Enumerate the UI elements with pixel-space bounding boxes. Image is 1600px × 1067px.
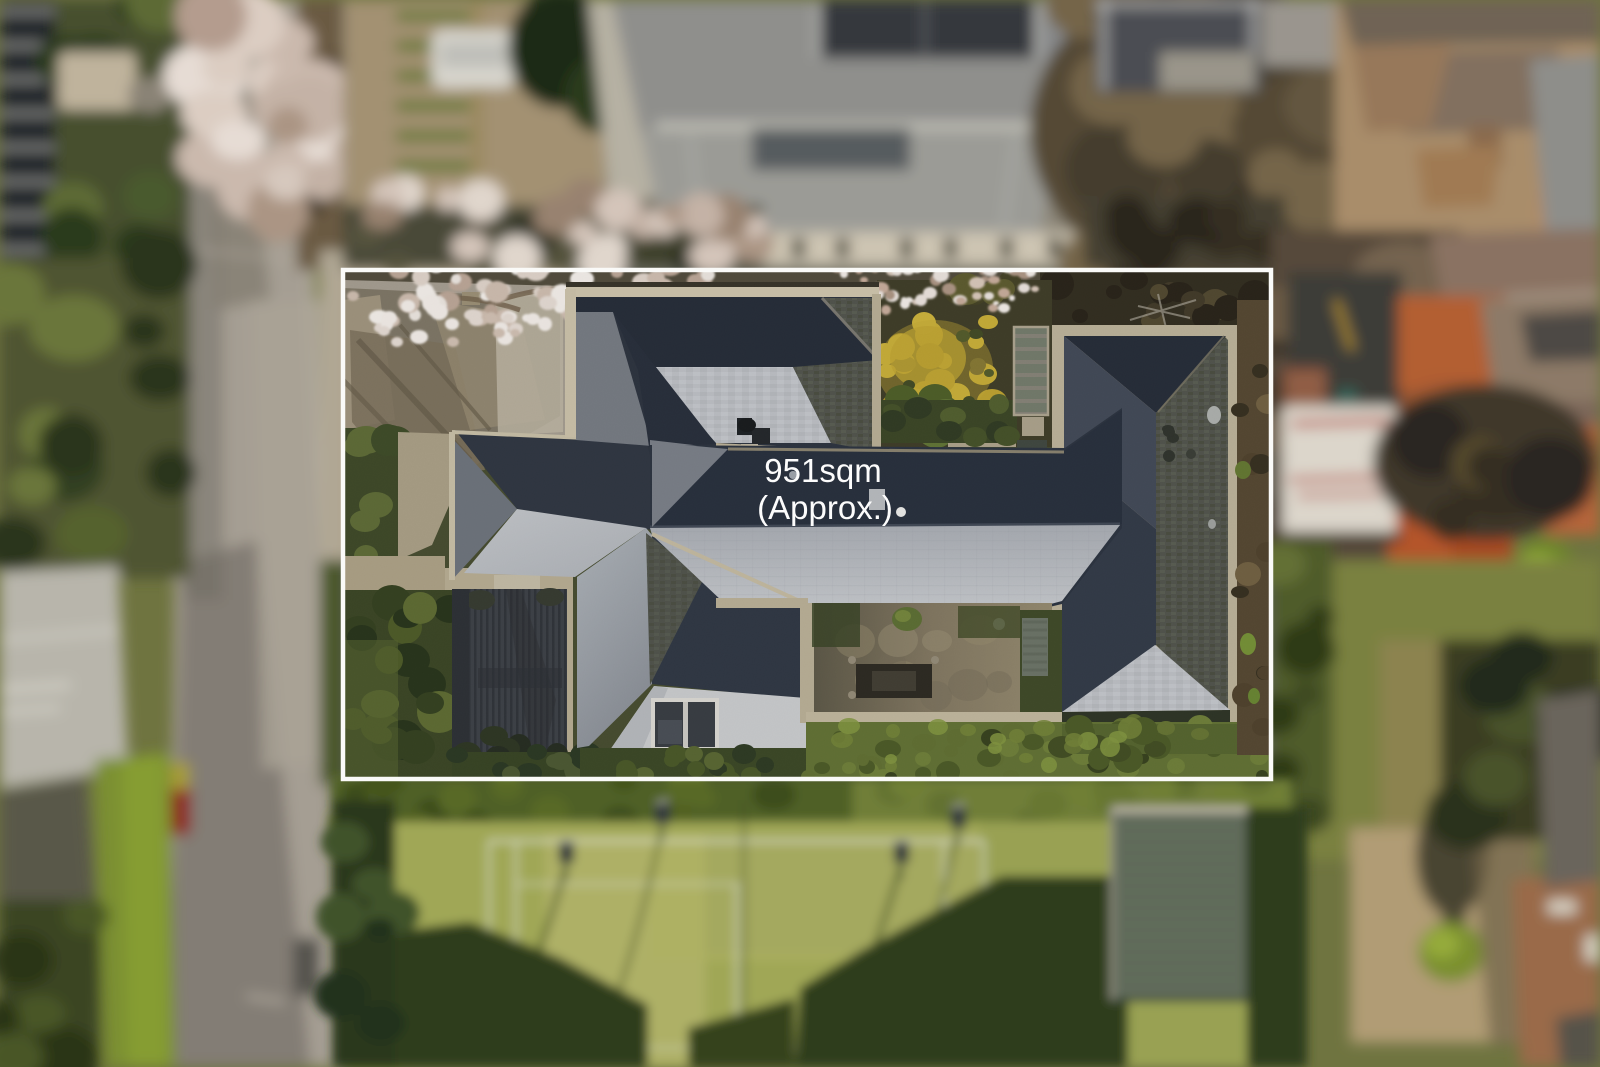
svg-text:(Approx.): (Approx.) bbox=[757, 489, 893, 526]
svg-text:951sqm: 951sqm bbox=[764, 452, 881, 489]
